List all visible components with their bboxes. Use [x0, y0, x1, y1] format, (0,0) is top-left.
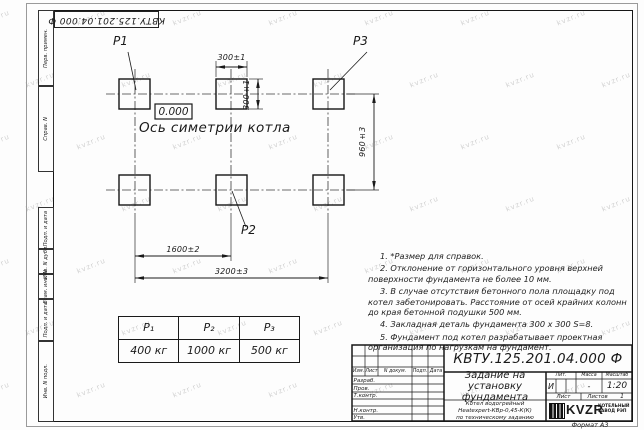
dim-pad-width: 300±1 — [205, 52, 258, 62]
notes-block: 1. *Размер для справок. 2. Отклонение от… — [368, 251, 631, 354]
kvzr-caption-line-2: ЗАВОД РЭП — [598, 409, 630, 414]
load-table-header: P₁ — [119, 317, 179, 340]
pad-label-p3: P3 — [353, 35, 368, 47]
tb-row-prov: Пров. — [354, 386, 370, 392]
tb-row-utv: Утв. — [354, 415, 366, 421]
load-table-header-row: P₁ P₂ P₃ — [119, 317, 299, 340]
drawing-sheet: kvzr.rukvzr.rukvzr.rukvzr.rukvzr.rukvzr.… — [0, 0, 644, 430]
kvzr-logo-caption: КОТЕЛЬНЫЙ ЗАВОД РЭП — [598, 404, 630, 415]
tb-scale-value: 1:20 — [602, 379, 632, 393]
pad-label-p2: P2 — [241, 224, 256, 236]
elevation-value: 0.000 — [155, 104, 192, 119]
load-table-value: 500 кг — [240, 340, 299, 363]
load-table-header: P₂ — [179, 317, 239, 340]
tb-lit-header: Лит. — [546, 372, 576, 379]
load-table: P₁ P₂ P₃ 400 кг 1000 кг 500 кг — [118, 316, 300, 363]
dim-row-spacing: 960±3 — [358, 120, 367, 164]
tb-lit-value: И — [546, 379, 556, 393]
tb-sheets-label: Листов — [581, 393, 614, 400]
tb-row-nkontr: Н.контр. — [354, 408, 379, 414]
kvzr-logo-icon — [549, 403, 565, 419]
tb-col-podp: Подп. — [412, 367, 428, 376]
title-block-designation: КВТУ.125.201.04.000 Ф — [446, 346, 630, 371]
tb-sheet-label: Лист — [546, 393, 581, 400]
note-item-3: 3. В случае отсутствия бетонного пола пл… — [368, 286, 631, 318]
load-table-value-row: 400 кг 1000 кг 500 кг — [119, 340, 299, 363]
dim-col-spacing: 1600±2 — [148, 244, 218, 254]
tb-sheets-value: 1 — [612, 393, 632, 400]
note-item-4: 4. Закладная деталь фундамента 300 x 300… — [368, 319, 631, 330]
load-table-value: 400 кг — [119, 340, 179, 363]
tb-row-tkontr: Т.контр. — [354, 393, 378, 399]
title-block-subtitle-2: Heatexpert-КВр-0,45-К(К) — [445, 408, 545, 415]
note-item-2: 2. Отклонение от горизонтального уровня … — [368, 263, 631, 284]
tb-col-izm: Изм. — [352, 367, 365, 376]
dim-total-span: 3200±3 — [193, 266, 270, 276]
pad-label-p1: P1 — [113, 35, 128, 47]
format-label: Формат А3 — [548, 421, 632, 429]
tb-col-ndokum: N докум. — [378, 367, 412, 376]
tb-col-list: Лист — [365, 367, 378, 376]
tb-mass-value: - — [576, 379, 602, 393]
dim-pad-height: 300±1 — [242, 78, 251, 112]
title-block-subtitle-3: по техническому заданию — [445, 415, 545, 422]
tb-row-razrab: Разраб. — [354, 378, 376, 384]
foundation-pads — [119, 79, 344, 205]
tb-mass-header: Масса — [576, 372, 602, 379]
centerlines — [106, 69, 356, 214]
note-item-1: 1. *Размер для справок. — [368, 251, 631, 262]
load-table-value: 1000 кг — [179, 340, 239, 363]
tb-col-data: Дата — [428, 367, 444, 376]
title-block-doc-title: Задание на установку фундамента — [445, 373, 545, 399]
title-block-subtitle-1: Котел водогрейный — [445, 401, 545, 408]
load-table-header: P₃ — [240, 317, 299, 340]
tb-scale-header: Масштаб — [602, 372, 632, 379]
axis-of-symmetry-label: Ось симетрии котла — [139, 122, 291, 136]
